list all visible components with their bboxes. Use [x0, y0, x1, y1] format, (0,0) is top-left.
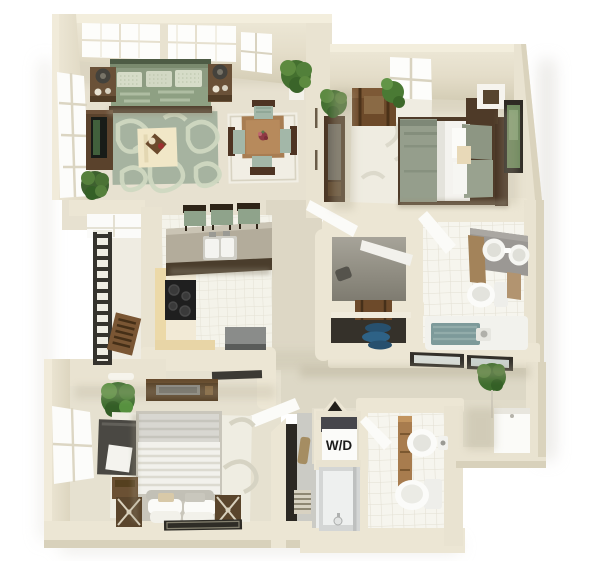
svg-text:W/D: W/D	[326, 438, 352, 453]
